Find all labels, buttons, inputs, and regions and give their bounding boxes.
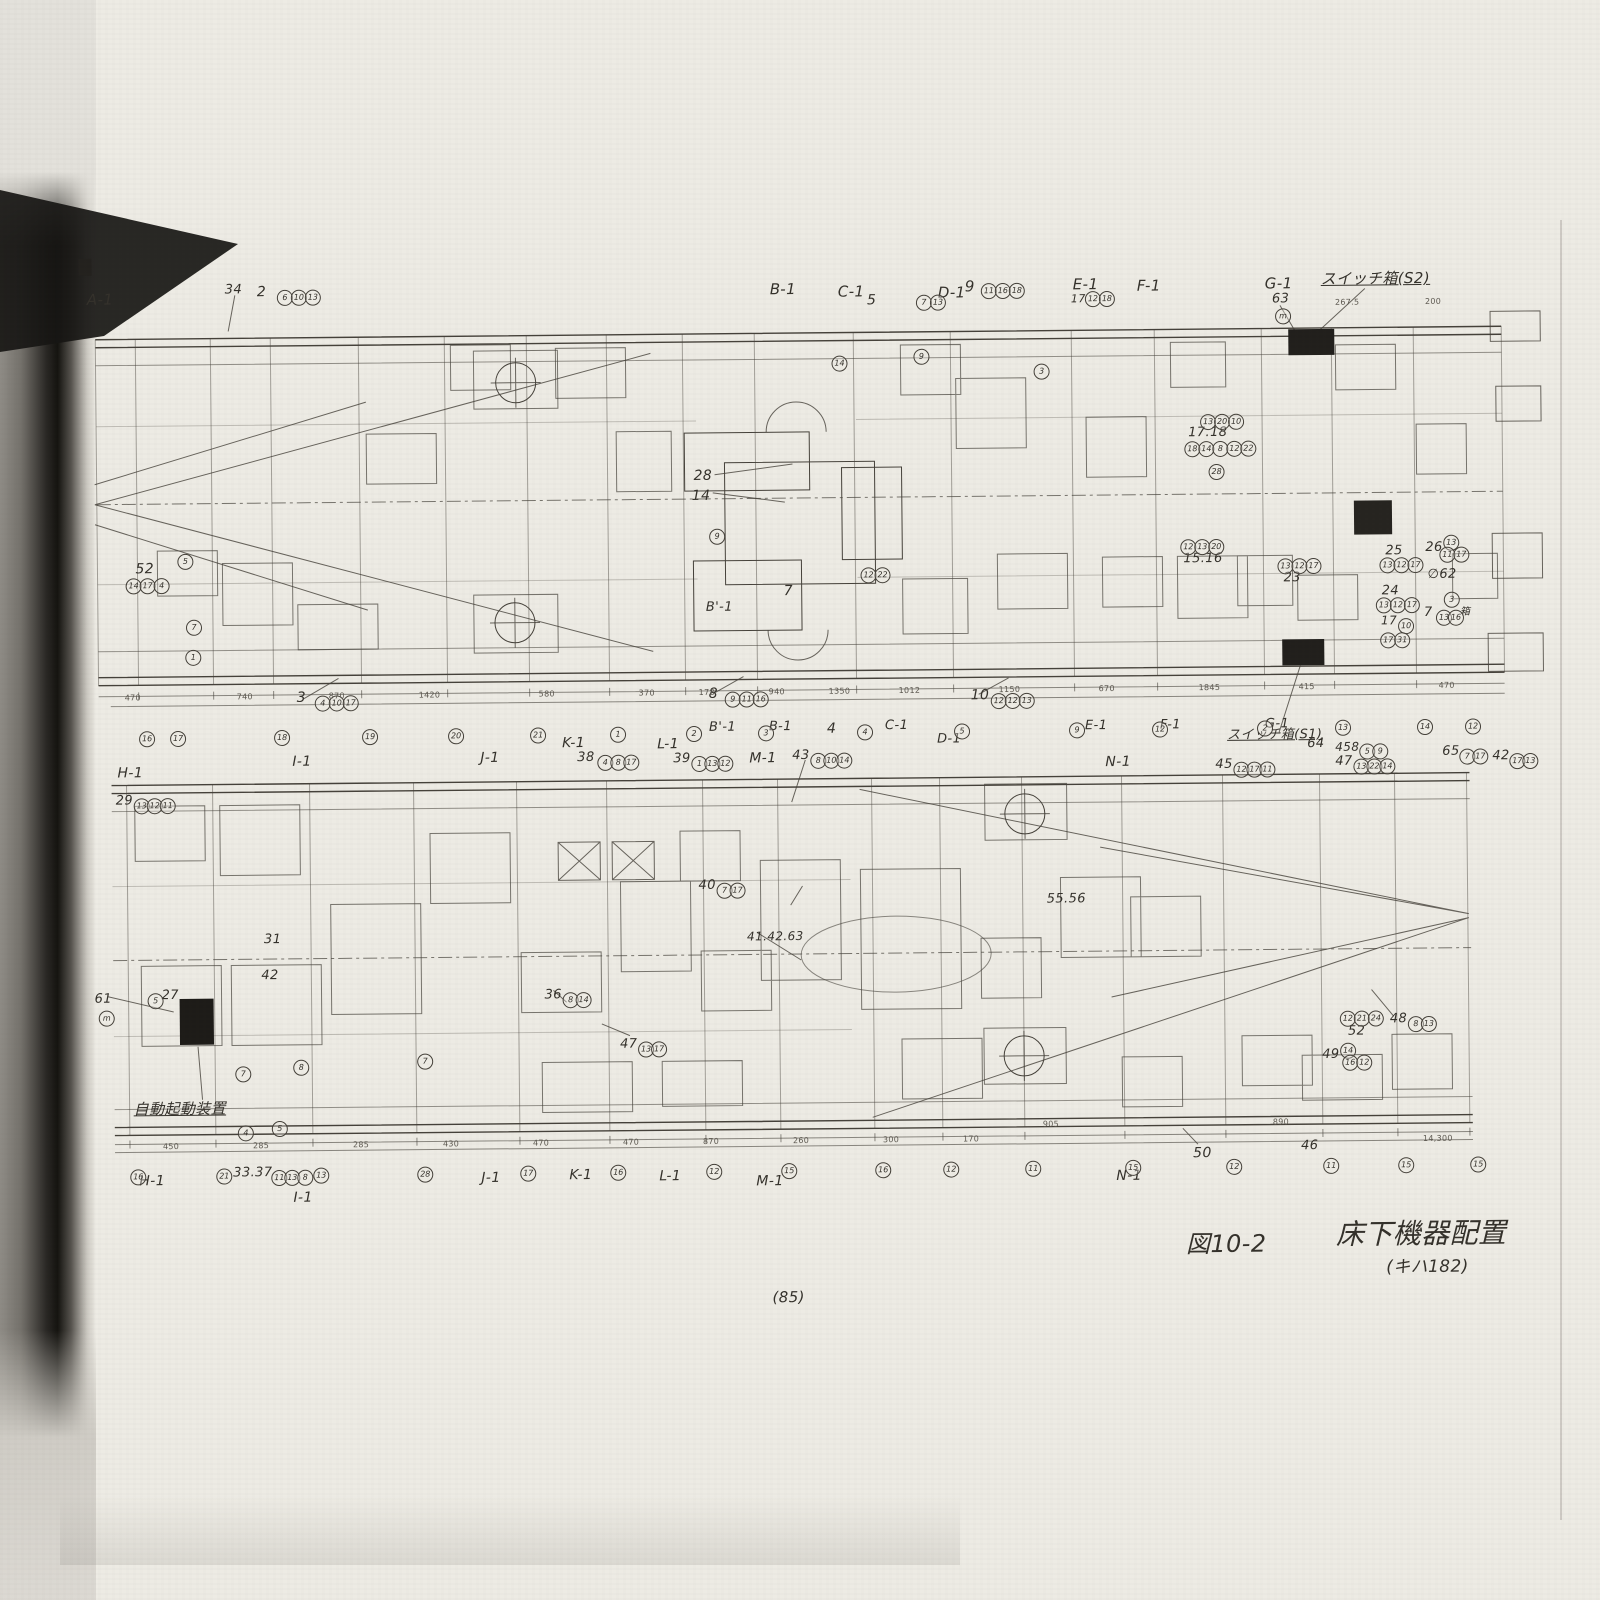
upper-frame-rails [95,326,1504,685]
upper-centerline [97,491,1503,504]
lower-engine-outline [801,915,992,993]
upper-engine-block [684,432,810,491]
figure-title: 床下機器配置 [1336,1211,1507,1253]
auto-start-device-fill [180,999,214,1045]
figure-subtitle: (キハ182) [1386,1252,1469,1278]
upper-leader-lines [228,285,1369,743]
drawing-sheet: A-1342B-1C-15D-19E-117F-1G-163スイッチ箱(S2)5… [0,0,1600,1600]
upper-equipment-boxes [155,335,1498,651]
lower-hatched-boxes [558,841,654,880]
filled-equipment-box [1354,500,1392,534]
upper-frame-posts [95,326,1504,685]
switch-box-s2-fill [1288,329,1334,355]
page-bottom-shadow [60,1495,960,1565]
switch-box-s1-fill [1282,639,1324,665]
page-number: (85) [772,1288,805,1306]
corner-ink-mark [78,259,91,276]
lower-dimension-line [115,1132,1473,1153]
upper-margin-boxes [1485,311,1543,672]
figure-number: 図10-2 [1186,1224,1267,1260]
blueprint-linework [0,0,1600,1600]
scanned-page: A-1342B-1C-15D-19E-117F-1G-163スイッチ箱(S2)5… [0,0,1600,1600]
upper-end-taper-lines [93,353,653,656]
